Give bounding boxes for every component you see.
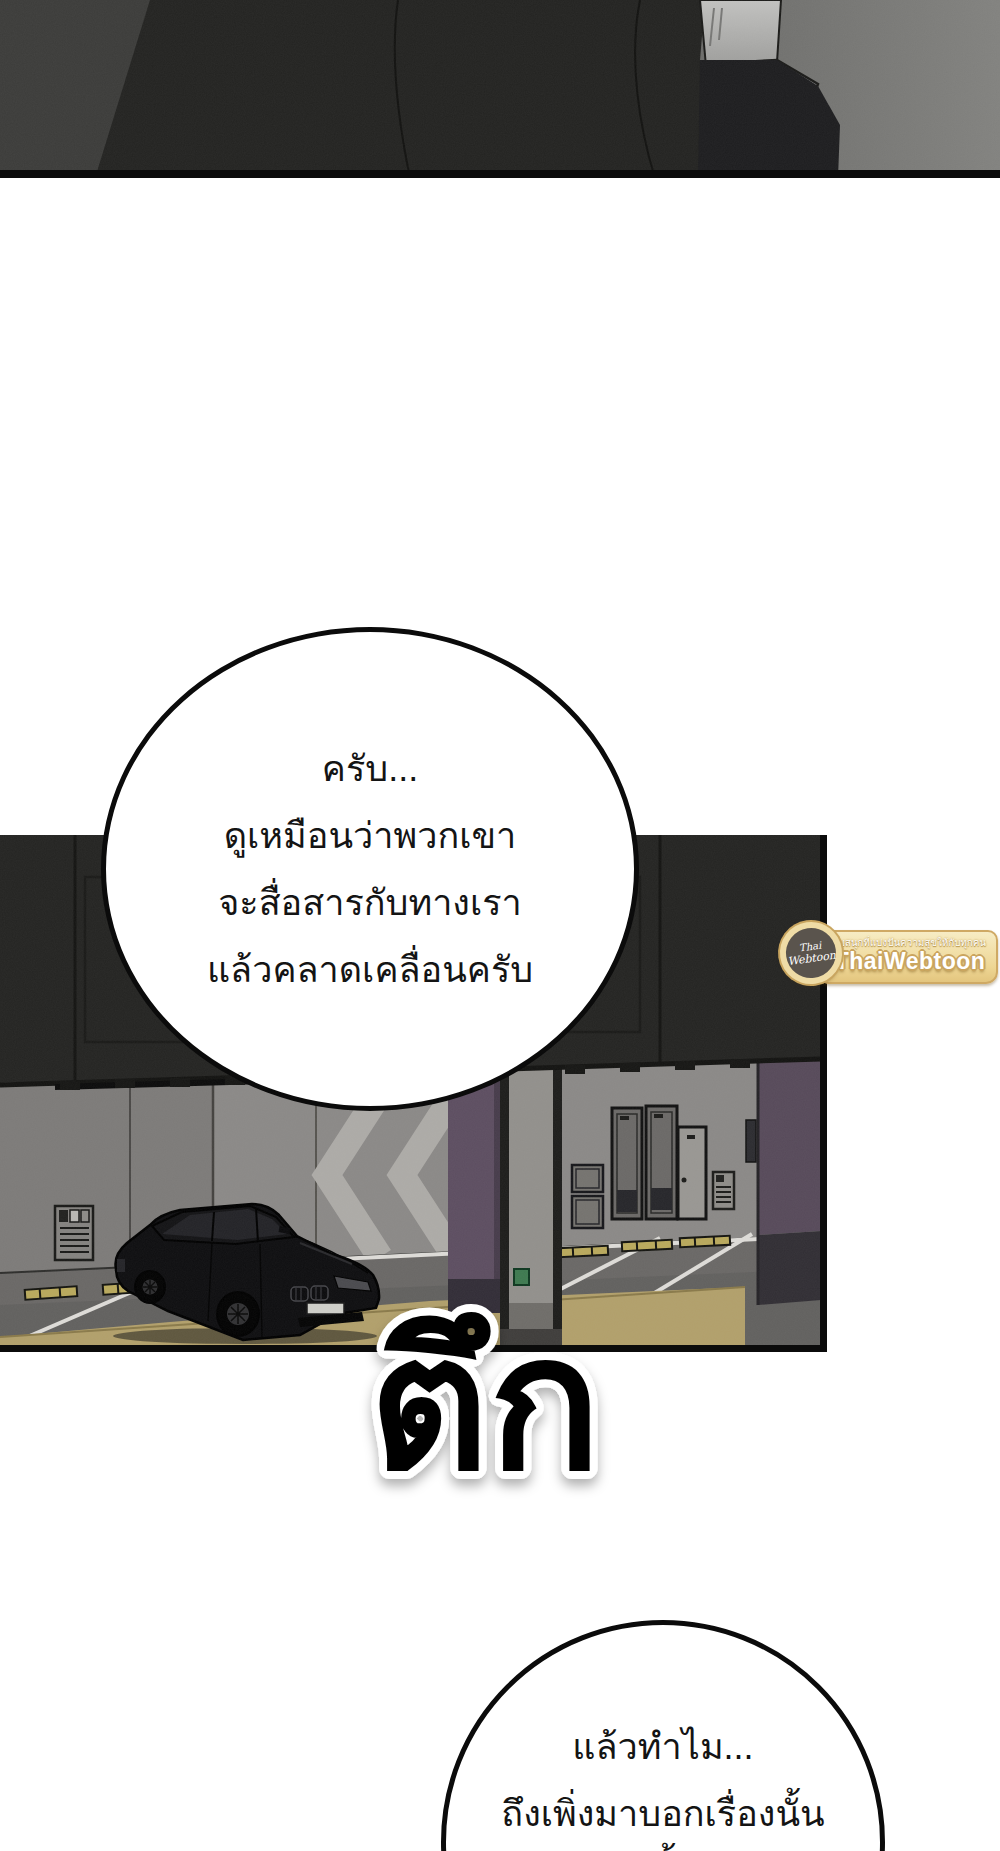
watermark-brand: ThaiWebtoon — [830, 948, 990, 975]
panel-border-right — [820, 835, 827, 1352]
sfx-text: ตึก — [369, 1300, 601, 1506]
bubble2-line3-partial: นั้ — [446, 1835, 880, 1851]
bubble2-line1: แล้วทำไม... — [572, 1713, 753, 1780]
webtoon-page: ครับ... ดูเหมือนว่าพวกเขา จะสื่อสารกับทา… — [0, 0, 1000, 1851]
speech-bubble-2: แล้วทำไม... ถึงเพิ่งมาบอกเรื่องนั้น นั้ — [441, 1620, 885, 1851]
bubble1-line3: จะสื่อสารกับทางเรา — [218, 869, 522, 936]
bubble1-line4: แล้วคลาดเคลื่อนครับ — [207, 936, 533, 1003]
bubble1-line2: ดูเหมือนว่าพวกเขา — [224, 802, 517, 869]
thaiwebtoon-watermark: เว็บสนุกที่แบ่งปันความสุขให้กับทุกคน Tha… — [778, 914, 1000, 992]
speech-bubble-1: ครับ... ดูเหมือนว่าพวกเขา จะสื่อสารกับทา… — [101, 627, 639, 1111]
bubble1-line1: ครับ... — [322, 735, 418, 802]
badge-text-bottom: Webtoon — [787, 950, 837, 968]
film-grain — [0, 0, 1000, 178]
panel-border-bottom — [0, 170, 1000, 178]
panel-suit-closeup — [0, 0, 1000, 178]
sfx-thud: ตึก — [295, 1262, 675, 1522]
